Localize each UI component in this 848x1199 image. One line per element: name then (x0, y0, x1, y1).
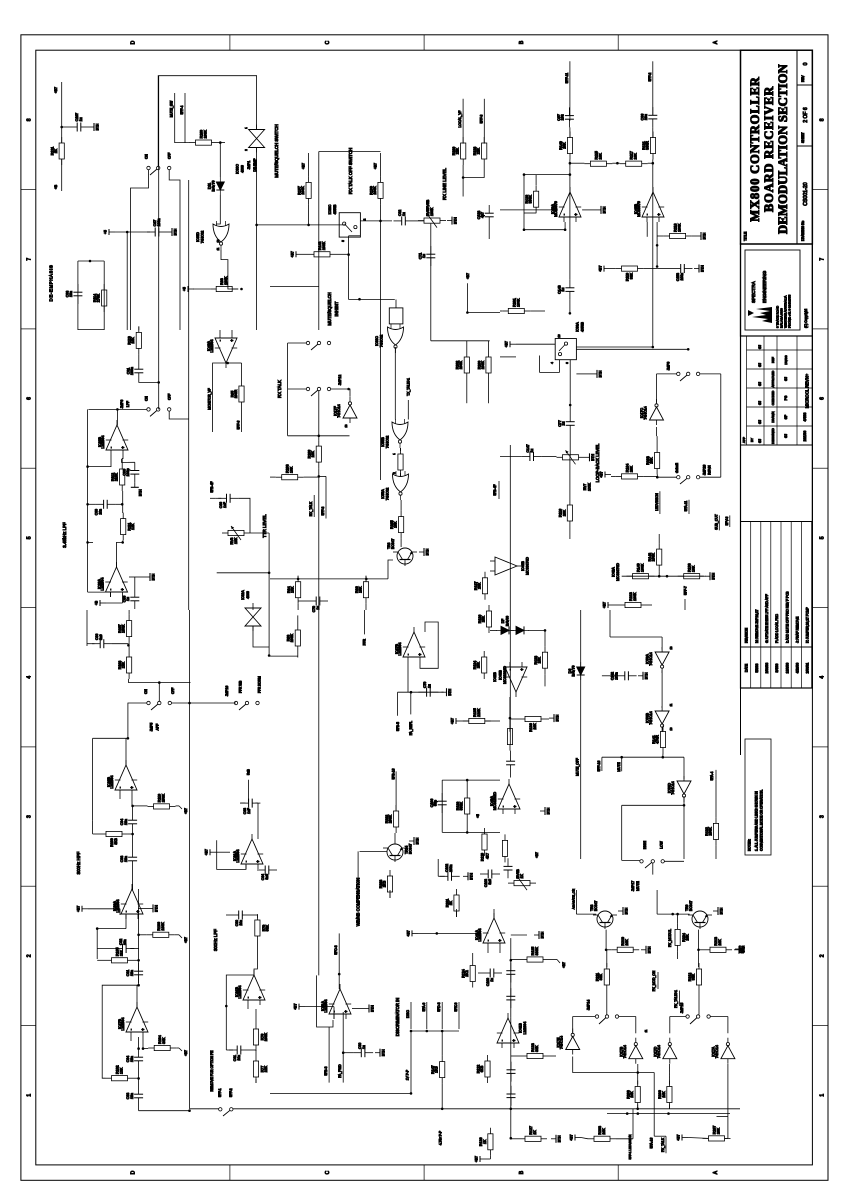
svg-text:100n: 100n (680, 273, 684, 281)
svg-text:+B7: +B7 (535, 852, 539, 858)
svg-text:270K: 270K (97, 293, 101, 302)
svg-text:4/4/98: 4/4/98 (803, 412, 807, 421)
svg-text:74HC02: 74HC02 (386, 436, 390, 449)
svg-text:D: D (131, 40, 137, 44)
svg-text:56p: 56p (433, 800, 437, 806)
svg-text:2/09/01: 2/09/01 (806, 662, 810, 673)
svg-text:IC49B: IC49B (499, 669, 503, 679)
svg-text:10K: 10K (481, 615, 485, 622)
svg-text:6: 6 (820, 397, 826, 400)
svg-text:10n: 10n (130, 970, 134, 976)
svg-text:2/09/98: 2/09/98 (765, 662, 769, 673)
svg-text:3/4/99: 3/4/99 (775, 663, 779, 672)
svg-text:100K: 100K (678, 223, 682, 232)
svg-text:10K: 10K (717, 1127, 721, 1134)
svg-text:10K: 10K (718, 939, 722, 946)
svg-text:BC847: BC847 (594, 901, 598, 911)
svg-text:CHECKED: CHECKED (771, 390, 775, 406)
svg-text:10K: 10K (358, 586, 362, 593)
svg-text:MUTE/SQUELCH: MUTE/SQUELCH (327, 292, 332, 325)
svg-text:C: C (325, 1170, 331, 1174)
svg-text:5uB: 5uB (246, 768, 250, 775)
svg-text:DE-EMPHASIS: DE-EMPHASIS (49, 265, 54, 302)
svg-text:DRAWN: DRAWN (771, 411, 775, 422)
svg-text:+B7: +B7 (562, 962, 566, 968)
svg-text:1u: 1u (362, 1045, 366, 1049)
svg-text:DISCRIMINATOR IN: DISCRIMINATOR IN (395, 998, 400, 1036)
svg-text:180p: 180p (126, 468, 130, 476)
svg-text:IC36A: IC36A (576, 322, 580, 332)
svg-text:GJ: GJ (758, 401, 762, 405)
svg-text:74HC14: 74HC14 (560, 1036, 564, 1049)
svg-text:ENGINEERING: ENGINEERING (762, 270, 767, 303)
svg-text:10n: 10n (123, 939, 127, 945)
svg-text:74HC14: 74HC14 (671, 781, 675, 794)
svg-text:29/1/96: 29/1/96 (803, 430, 807, 441)
svg-text:+B7: +B7 (677, 1134, 681, 1140)
svg-text:GJ: GJ (758, 420, 762, 424)
svg-text:10n: 10n (130, 1056, 134, 1062)
svg-text:BTH: BTH (648, 946, 652, 953)
svg-text:MUTE_OFF: MUTE_OFF (576, 758, 580, 776)
svg-text:AGAGATE_ON: AGAGATE_ON (571, 889, 575, 909)
svg-text:5FF-1: 5FF-1 (218, 1088, 222, 1097)
svg-text:GJ: GJ (758, 382, 762, 386)
svg-text:BC847: BC847 (689, 901, 693, 911)
svg-text:BTH: BTH (701, 265, 705, 272)
svg-text:5FF-16: 5FF-16 (597, 761, 601, 772)
svg-text:CS001-20: CS001-20 (803, 182, 809, 205)
svg-text:1. ALL JUMPERS AND LINKS SHO: 1. ALL JUMPERS AND LINKS SHOWN IN (755, 791, 759, 851)
svg-text:BTH: BTH (603, 206, 607, 213)
svg-text:5FF-3: 5FF-3 (321, 506, 325, 515)
svg-text:+B7: +B7 (205, 849, 209, 855)
svg-text:JMP17: JMP17 (631, 881, 635, 892)
svg-text:10K: 10K (533, 723, 537, 730)
svg-text:LOCAL_VF: LOCAL_VF (458, 111, 462, 128)
svg-text:APF: APF (156, 724, 160, 731)
svg-text:0: 0 (803, 62, 809, 65)
svg-text:FFR WB: FFR WB (239, 681, 243, 693)
svg-text:5FC-3: 5FC-3 (334, 945, 338, 954)
svg-text:MC33076D: MC33076D (616, 563, 620, 581)
svg-text:100K: 100K (516, 298, 520, 307)
svg-text:APP: APP (742, 437, 746, 443)
svg-text:2: 2 (27, 954, 33, 957)
svg-text:DATE: DATE (745, 664, 749, 672)
svg-text:160K: 160K (264, 1032, 268, 1041)
svg-text:LM2904: LM2904 (523, 1022, 527, 1035)
svg-text:10n: 10n (130, 1093, 134, 1099)
svg-text:+B7: +B7 (291, 251, 295, 257)
svg-text:1K: 1K (449, 900, 453, 905)
svg-text:+B: +B (95, 600, 99, 605)
svg-text:10u: 10u (644, 114, 648, 120)
svg-text:BTH: BTH (382, 1049, 386, 1056)
svg-text:74HC02: 74HC02 (386, 488, 390, 501)
svg-text:GJ: GJ (758, 439, 762, 443)
svg-text:100n: 100n (130, 367, 134, 375)
svg-text:DWGS: DWGS (784, 355, 788, 364)
svg-text:BTH: BTH (416, 837, 420, 844)
svg-text:(C) Copyright: (C) Copyright (804, 309, 808, 328)
svg-text:22K: 22K (456, 147, 460, 154)
svg-text:HIGH: HIGH (643, 840, 647, 849)
svg-text:FFR NORM: FFR NORM (258, 676, 262, 693)
svg-text:5: 5 (820, 536, 826, 539)
svg-text:RV7: RV7 (583, 484, 587, 491)
svg-text:1K5: 1K5 (435, 1066, 439, 1072)
svg-text:2K2: 2K2 (465, 970, 469, 976)
svg-text:1u: 1u (126, 597, 130, 601)
svg-text:CONVENTIONAL MODE OR OPERATI: CONVENTIONAL MODE OR OPERATION. (760, 789, 764, 851)
svg-text:LM2904: LM2904 (324, 1000, 328, 1013)
svg-text:default: default (675, 463, 679, 473)
svg-text:1V P-P: 1V P-P (406, 1069, 410, 1080)
svg-text:LM2904: LM2904 (238, 986, 242, 999)
svg-text:33K: 33K (630, 272, 634, 279)
svg-text:FFR: FFR (363, 638, 367, 645)
svg-text:SPECTRA: SPECTRA (751, 280, 756, 303)
svg-text:FA_FWD: FA_FWD (338, 1064, 342, 1078)
svg-text:MX800 CONTROLLER: MX800 CONTROLLER (748, 76, 762, 221)
svg-text:10K: 10K (630, 1091, 634, 1098)
svg-text:100K: 100K (122, 624, 126, 633)
svg-text:RX_TALK: RX_TALK (309, 501, 313, 516)
svg-text:BTH: BTH (174, 228, 178, 235)
svg-text:5FB-16: 5FB-16 (392, 768, 396, 779)
svg-text:100K: 100K (389, 814, 393, 823)
svg-text:BTH: BTH (712, 572, 716, 579)
svg-text:BTH: BTH (152, 573, 156, 580)
svg-text:RX LINE LEVEL: RX LINE LEVEL (442, 167, 447, 200)
svg-text:5FB-5: 5FB-5 (396, 722, 400, 731)
svg-text:100n: 100n (449, 864, 453, 872)
svg-text:33K: 33K (535, 1045, 539, 1052)
svg-text:56K: 56K (265, 924, 269, 931)
svg-text:74HC14: 74HC14 (337, 404, 341, 417)
svg-text:100K: 100K (290, 633, 294, 642)
svg-text:1: 1 (27, 1094, 33, 1097)
svg-text:3.45kHz LPF: 3.45kHz LPF (62, 522, 67, 548)
svg-text:4066: 4066 (246, 591, 250, 599)
svg-text:1K: 1K (533, 1130, 537, 1135)
svg-text:BOARD RECEIVER: BOARD RECEIVER (762, 86, 776, 212)
svg-text:3n9: 3n9 (265, 874, 269, 880)
svg-text:IC41B: IC41B (519, 1022, 523, 1032)
svg-text:REMOVE FOR OPTION PE: REMOVE FOR OPTION PE (210, 1050, 214, 1092)
svg-text:BTH: BTH (547, 807, 551, 814)
svg-text:74HC14: 74HC14 (649, 652, 653, 665)
svg-text:DESIGNED: DESIGNED (771, 427, 775, 444)
svg-text:IC38C: IC38C (328, 204, 332, 214)
svg-text:8: 8 (27, 118, 33, 121)
svg-text:4: 4 (27, 676, 33, 679)
svg-text:DISC: DISC (406, 1009, 410, 1017)
svg-text:4053B: 4053B (581, 321, 585, 332)
svg-text:13K: 13K (122, 661, 126, 668)
svg-text:6: 6 (27, 397, 33, 400)
svg-text:4p7: 4p7 (480, 212, 484, 218)
svg-text:MC33076: MC33076 (637, 201, 641, 217)
svg-text:74HC14: 74HC14 (649, 711, 653, 724)
svg-text:5FA-16: 5FA-16 (649, 1138, 653, 1149)
svg-text:10n: 10n (124, 856, 128, 862)
svg-text:IC42A: IC42A (612, 566, 616, 576)
svg-text:5FA-9: 5FA-9 (422, 1002, 426, 1011)
svg-text:12K: 12K (131, 523, 135, 530)
svg-text:16: 16 (557, 334, 561, 338)
svg-text:1K: 1K (54, 148, 58, 153)
svg-text:3n9: 3n9 (488, 879, 492, 885)
svg-text:MC33076: MC33076 (554, 201, 558, 217)
svg-text:300Hz HPF: 300Hz HPF (76, 851, 81, 874)
svg-text:LM2904: LM2904 (101, 578, 105, 591)
svg-text:BTH: BTH (645, 672, 649, 679)
svg-text:ON: ON (144, 689, 148, 694)
svg-text:LPF: LPF (126, 401, 130, 407)
svg-text:M: REMOVE JMP26,27: M: REMOVE JMP26,27 (755, 609, 759, 643)
svg-text:5FK-9: 5FK-9 (454, 1002, 458, 1011)
svg-text:1u: 1u (79, 117, 83, 121)
svg-text:ON: ON (145, 154, 149, 159)
svg-text:DF: DF (501, 619, 505, 624)
svg-text:100K: 100K (430, 207, 434, 216)
svg-text:C79: C79 (423, 682, 427, 688)
svg-text:+B7: +B7 (466, 273, 470, 279)
svg-text:1u: 1u (402, 212, 406, 216)
svg-text:300Hz LPF: 300Hz LPF (213, 929, 218, 951)
svg-text:BTH: BTH (541, 931, 545, 938)
svg-text:10K: 10K (562, 509, 566, 516)
svg-text:BTH: BTH (703, 232, 707, 239)
svg-text:6K8: 6K8 (480, 1066, 484, 1072)
svg-text:18/9/99: 18/9/99 (785, 662, 789, 673)
svg-text:10K: 10K (630, 465, 634, 472)
svg-text:5FB-4F: 5FB-4F (493, 485, 497, 496)
svg-text:3: 3 (27, 815, 33, 818)
svg-text:8: 8 (820, 118, 826, 121)
svg-text:+B7: +B7 (451, 718, 455, 724)
svg-text:100K: 100K (373, 186, 377, 195)
svg-text:10K: 10K (290, 466, 294, 473)
svg-text:1K: 1K (483, 1139, 487, 1144)
svg-text:LM2904: LM2904 (398, 643, 402, 656)
svg-text:MC33202D: MC33202D (503, 666, 507, 684)
svg-text:10n: 10n (124, 819, 128, 825)
svg-text:MONITOR_VF: MONITOR_VF (208, 388, 212, 410)
svg-text:4: 4 (820, 676, 826, 679)
svg-text:LOW: LOW (660, 840, 664, 848)
svg-text:4.75v P-P: 4.75v P-P (439, 1130, 443, 1145)
svg-text:LM2904: LM2904 (121, 1018, 125, 1031)
svg-text:10K: 10K (598, 153, 602, 160)
svg-text:LM2904: LM2904 (210, 340, 214, 353)
svg-text:1u: 1u (316, 606, 320, 610)
svg-text:+B7: +B7 (407, 930, 411, 936)
svg-text:1uF: 1uF (247, 808, 251, 814)
svg-text:SHEET: SHEET (801, 132, 805, 143)
svg-text:4066: 4066 (241, 165, 245, 173)
svg-text:FX_TALK+1: FX_TALK+1 (674, 990, 678, 1008)
svg-text:1: 1 (820, 1094, 826, 1097)
svg-text:5: 5 (27, 536, 33, 539)
svg-text:10K: 10K (602, 1128, 606, 1135)
svg-text:10K: 10K (686, 934, 690, 941)
svg-text:+B7: +B7 (302, 163, 306, 169)
svg-text:560K: 560K (460, 801, 464, 810)
svg-text:10K: 10K (562, 142, 566, 149)
svg-text:100K: 100K (204, 129, 208, 138)
svg-text:1uF: 1uF (223, 502, 227, 508)
svg-text:100K: 100K (301, 186, 305, 195)
svg-text:JMP16: JMP16 (225, 686, 229, 697)
svg-text:DRAWING No: DRAWING No (801, 221, 805, 241)
svg-text:MUTE/SQUELCH SWITCH: MUTE/SQUELCH SWITCH (274, 124, 279, 177)
svg-text:4/10/00: 4/10/00 (796, 662, 800, 673)
svg-text:10n: 10n (98, 509, 102, 515)
svg-text:IC55A: IC55A (381, 489, 385, 499)
svg-text:GP: GP (784, 415, 788, 420)
svg-text:FX_MOD_ON: FX_MOD_ON (652, 970, 656, 991)
svg-text:BY: BY (750, 438, 754, 442)
svg-text:1u: 1u (561, 288, 565, 292)
svg-text:2 OF 6: 2 OF 6 (803, 107, 809, 123)
svg-text:+5: +5 (104, 230, 108, 234)
svg-text:BTH: BTH (155, 904, 159, 911)
svg-text:FA_REFL: FA_REFL (409, 721, 413, 735)
svg-text:PHONE +61 8 92482755: PHONE +61 8 92482755 (788, 294, 792, 328)
svg-text:FX_TALK: FX_TALK (661, 1137, 665, 1152)
svg-text:FX_MODUL: FX_MODUL (668, 929, 672, 947)
svg-text:MUTE: MUTE (617, 762, 621, 772)
svg-text:K: JUMPER,26,27 FCMP: K: JUMPER,26,27 FCMP (806, 607, 810, 643)
svg-text:BTH: BTH (742, 945, 746, 952)
svg-text:+B7: +B7 (570, 1134, 574, 1140)
svg-text:+B7: +B7 (374, 163, 378, 169)
svg-text:DEMODULATION SECTION: DEMODULATION SECTION (776, 64, 790, 234)
svg-text:10K: 10K (394, 521, 398, 528)
svg-text:RX TALK OFF SWITCH: RX TALK OFF SWITCH (348, 148, 353, 194)
svg-text:74HC14: 74HC14 (623, 1045, 627, 1058)
svg-text:+B7: +B7 (475, 1156, 479, 1162)
svg-text:1u: 1u (561, 422, 565, 426)
svg-text:5FA-11: 5FA-11 (684, 501, 688, 512)
svg-text:74HC02: 74HC02 (201, 231, 205, 244)
svg-text:3K3: 3K3 (114, 838, 118, 844)
svg-text:BTH: BTH (625, 907, 629, 914)
svg-text:20K: 20K (477, 582, 481, 589)
svg-text:180K: 180K (161, 922, 165, 931)
svg-text:ON: ON (145, 396, 149, 401)
svg-text:3: 3 (820, 815, 826, 818)
svg-text:LM2904: LM2904 (110, 776, 114, 789)
svg-text:5FF-8: 5FF-8 (479, 114, 483, 123)
svg-text:JMP6: JMP6 (120, 400, 124, 409)
svg-text:TX_TALK+1: TX_TALK+1 (407, 378, 411, 396)
svg-text:100K: 100K (481, 360, 485, 369)
svg-text:REV: REV (801, 75, 805, 82)
svg-text:BTH: BTH (720, 907, 724, 914)
svg-text:10K: 10K (650, 457, 654, 464)
svg-text:TITLE: TITLE (744, 231, 748, 241)
svg-text:+B7: +B7 (505, 341, 509, 347)
svg-text:5FF-11: 5FF-11 (565, 73, 569, 84)
svg-text:1u: 1u (427, 684, 431, 688)
svg-text:1n: 1n (490, 978, 494, 982)
svg-text:150K: 150K (162, 793, 166, 802)
svg-text:10K: 10K (291, 586, 295, 593)
svg-text:100K: 100K (588, 482, 592, 491)
svg-text:10n: 10n (237, 1055, 241, 1061)
svg-text:15K: 15K (131, 337, 135, 344)
svg-text:10K: 10K (234, 537, 238, 544)
svg-text:LM2904: LM2904 (478, 929, 482, 942)
svg-text:BAV70: BAV70 (211, 181, 215, 192)
svg-text:+B7: +B7 (54, 87, 58, 93)
svg-text:MUTE_SW: MUTE_SW (170, 100, 174, 117)
svg-text:74HC14: 74HC14 (715, 1045, 719, 1058)
svg-text:+B7: +B7 (184, 808, 188, 814)
svg-text:F: ADD LOCAL FNC: F: ADD LOCAL FNC (775, 613, 779, 643)
svg-text:+5: +5 (183, 287, 187, 291)
svg-text:INHIBIT: INHIBIT (334, 301, 339, 316)
svg-text:100K: 100K (633, 592, 637, 601)
svg-text:10n: 10n (239, 920, 243, 926)
svg-text:2: 2 (820, 954, 826, 957)
svg-text:BTH: BTH (470, 872, 474, 879)
svg-text:4K7: 4K7 (486, 853, 490, 859)
svg-text:7: 7 (27, 258, 33, 261)
svg-text:74HC14: 74HC14 (657, 1045, 661, 1058)
svg-text:PG: PG (784, 395, 788, 400)
svg-text:220K: 220K (477, 708, 481, 717)
svg-text:470R: 470R (655, 735, 659, 744)
svg-text:JMP1: JMP1 (247, 161, 251, 170)
svg-text:I: ADD MUTE OFF FNC REV F P: I: ADD MUTE OFF FNC REV F PCB (785, 591, 789, 643)
svg-text:APPROVED: APPROVED (771, 370, 775, 388)
svg-text:390K: 390K (529, 194, 533, 203)
svg-text:5FD-3: 5FD-3 (437, 1002, 441, 1011)
svg-text:JMP9: JMP9 (667, 362, 671, 371)
svg-text:IC35D: IC35D (196, 232, 200, 242)
svg-text:30K: 30K (162, 1037, 166, 1044)
svg-text:10K: 10K (311, 450, 315, 457)
svg-text:5FF-4: 5FF-4 (180, 105, 184, 114)
svg-text:10n: 10n (69, 291, 73, 297)
svg-text:LM2904: LM2904 (101, 436, 105, 449)
svg-text:10K: 10K (634, 153, 638, 160)
svg-text:100K: 100K (641, 563, 645, 572)
svg-text:MUTE: MUTE (636, 880, 640, 890)
svg-text:74HC14: 74HC14 (644, 406, 648, 419)
svg-text:10K: 10K (477, 661, 481, 668)
svg-text:REVISION: REVISION (745, 627, 749, 643)
svg-text:1K3: 1K3 (382, 881, 386, 887)
svg-text:G: UPDATE EYE55 LPF AND APF: G: UPDATE EYE55 LPF AND APF (765, 594, 769, 643)
svg-text:1u: 1u (530, 449, 534, 453)
svg-text:5/3/03: 5/3/03 (755, 663, 759, 672)
svg-text:GJ: GJ (758, 345, 762, 349)
svg-text:MC33076D: MC33076D (526, 557, 530, 575)
svg-text:33K: 33K (691, 973, 695, 980)
svg-text:JMP12: JMP12 (338, 375, 342, 386)
svg-text:BTH: BTH (96, 123, 100, 130)
svg-text:OFF: OFF (171, 688, 175, 694)
svg-text:5FB-4F: 5FB-4F (210, 482, 214, 493)
svg-text:BC847: BC847 (391, 539, 395, 549)
svg-text:110K: 110K (115, 472, 119, 481)
